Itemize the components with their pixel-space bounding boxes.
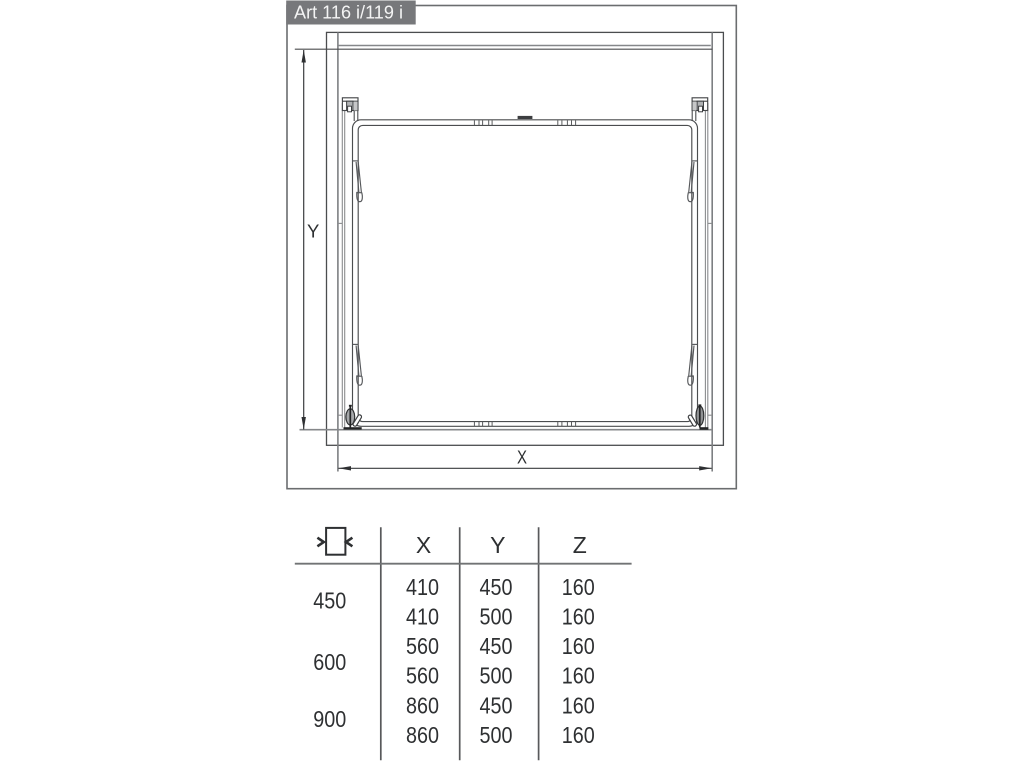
svg-text:600: 600 — [313, 649, 346, 675]
svg-text:160: 160 — [562, 692, 595, 718]
svg-text:410: 410 — [406, 574, 439, 600]
svg-text:500: 500 — [480, 722, 513, 748]
svg-text:160: 160 — [562, 604, 595, 630]
svg-text:Z: Z — [573, 532, 587, 558]
svg-text:560: 560 — [406, 663, 439, 689]
svg-text:Y: Y — [307, 221, 319, 242]
svg-text:160: 160 — [562, 722, 595, 748]
svg-text:900: 900 — [313, 706, 346, 732]
svg-text:500: 500 — [480, 663, 513, 689]
svg-text:160: 160 — [562, 663, 595, 689]
svg-text:450: 450 — [480, 692, 513, 718]
svg-text:450: 450 — [480, 574, 513, 600]
svg-text:X: X — [416, 532, 431, 558]
svg-text:860: 860 — [406, 722, 439, 748]
svg-text:160: 160 — [562, 633, 595, 659]
svg-text:Y: Y — [490, 532, 505, 558]
svg-text:X: X — [517, 447, 527, 468]
svg-text:450: 450 — [480, 633, 513, 659]
svg-text:860: 860 — [406, 692, 439, 718]
svg-text:500: 500 — [480, 604, 513, 630]
svg-text:410: 410 — [406, 604, 439, 630]
svg-text:450: 450 — [313, 588, 346, 614]
svg-text:560: 560 — [406, 633, 439, 659]
svg-text:Art 116 i/119 i: Art 116 i/119 i — [294, 2, 403, 22]
svg-text:160: 160 — [562, 574, 595, 600]
